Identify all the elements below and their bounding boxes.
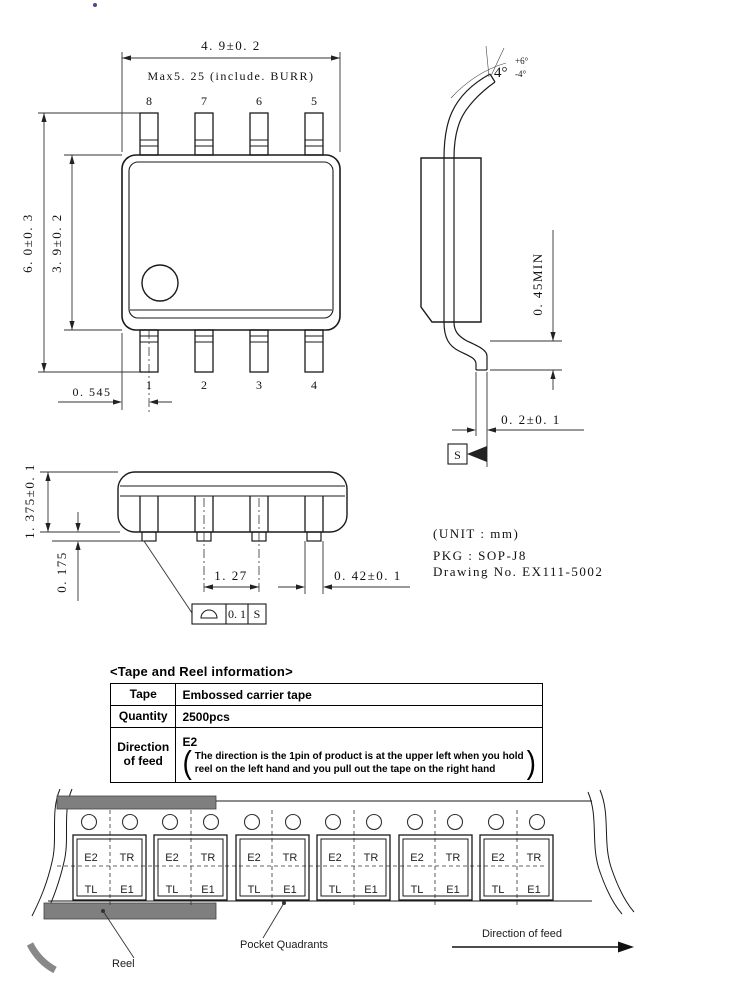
quadrant-tr: TR [527, 852, 542, 864]
quadrant-e1: E1 [527, 884, 540, 896]
top-pins [140, 113, 323, 155]
dim-lead-thickness: 0. 2±0. 1 [501, 412, 561, 427]
quadrant-tl: TL [329, 884, 342, 896]
pin-number-2: 2 [201, 378, 207, 392]
note-pkg: PKG : SOP-J8 [433, 548, 527, 563]
quantity-value: 2500pcs [176, 706, 543, 728]
quadrant-e1: E1 [120, 884, 133, 896]
tape-reel-title: <Tape and Reel information> [110, 664, 543, 679]
side-view-legs [140, 496, 323, 541]
pocket: E2 TR TL E1 [480, 835, 553, 900]
top-view: 8 7 6 5 1 2 3 4 [122, 94, 340, 414]
datum-s-label: S [454, 448, 461, 462]
package-drawing-page: 8 7 6 5 1 2 3 4 4. 9±0. 2 Max5. 25 (incl… [0, 0, 742, 988]
side-view: 1. 375±0. 1 0. 175 1. 27 0. 42±0. 1 0. 1 [22, 463, 410, 624]
quadrant-tr: TR [446, 852, 461, 864]
direction-note: ( The direction is the 1pin of product i… [182, 750, 536, 776]
drawing-notes: (UNIT : mm) PKG : SOP-J8 Drawing No. EX1… [433, 526, 603, 579]
pocket: E2 TR TL E1 [236, 835, 309, 900]
tape-label: Tape [111, 684, 176, 706]
quadrant-tr: TR [120, 852, 135, 864]
dim-lead-width: 0. 42±0. 1 [334, 568, 402, 583]
reel-bar-bottom [44, 903, 216, 919]
dim-body-height: 3. 9±0. 2 [49, 213, 64, 273]
pin-number-8: 8 [146, 94, 152, 108]
pocket: E2 TR TL E1 [73, 835, 146, 900]
pin-number-6: 6 [256, 94, 262, 108]
pocket: E2 TR TL E1 [154, 835, 227, 900]
fcf-datum: S [254, 607, 261, 621]
mechanical-drawing: 8 7 6 5 1 2 3 4 4. 9±0. 2 Max5. 25 (incl… [0, 0, 742, 655]
quadrant-tr: TR [364, 852, 379, 864]
pockets: E2 TR TL E1 E2 TR TL E1 E2 TR TL E1 [73, 835, 553, 900]
side-view-body [118, 472, 347, 532]
pin-number-3: 3 [256, 378, 262, 392]
direction-label: Direction of feed [111, 728, 176, 783]
dim-pin1-offset: 0. 545 [73, 385, 112, 399]
dim-lead-angle-minus: -4° [515, 69, 526, 79]
pin-number-5: 5 [311, 94, 317, 108]
note-unit: (UNIT : mm) [433, 526, 519, 541]
package-body-outline [122, 155, 340, 330]
tape-drawing: E2 TR TL E1 E2 TR TL E1 E2 TR TL E1 [0, 785, 742, 988]
direction-note-line2: reel on the left hand and you pull out t… [195, 763, 524, 776]
reel-bar-top [57, 796, 216, 809]
direction-note-line1: The direction is the 1pin of product is … [195, 750, 524, 763]
seating-plane-symbol-icon [201, 610, 217, 618]
end-view: 4° +6° -4° 0. 45MIN 0. 2±0. 1 S [421, 46, 584, 467]
dim-pkg-height: 1. 375±0. 1 [22, 463, 37, 539]
quadrant-e1: E1 [446, 884, 459, 896]
quadrant-tl: TL [85, 884, 98, 896]
quadrant-e1: E1 [364, 884, 377, 896]
quadrant-e1: E1 [283, 884, 296, 896]
pin1-marker-circle [142, 265, 178, 301]
datum-s-flag: S [448, 444, 487, 464]
sprocket-holes [82, 815, 545, 830]
quadrant-e2: E2 [328, 852, 341, 864]
dim-standoff: 0. 175 [54, 551, 69, 593]
pocket-quadrants-label: Pocket Quadrants [240, 939, 329, 951]
tape-end-curl [30, 944, 55, 970]
dim-body-width: 4. 9±0. 2 [201, 38, 261, 53]
dim-lead-angle: 4° [494, 65, 508, 81]
dim-foot-min: 0. 45MIN [530, 252, 545, 315]
direction-of-feed-label: Direction of feed [482, 928, 562, 940]
dim-lead-angle-plus: +6° [515, 56, 529, 66]
top-view-dimensions: 4. 9±0. 2 Max5. 25 (include. BURR) 6. 0±… [20, 38, 340, 410]
pocket: E2 TR TL E1 [317, 835, 390, 900]
pin-number-1: 1 [146, 378, 152, 392]
quadrant-tl: TL [166, 884, 179, 896]
reel-label: Reel [112, 958, 135, 970]
tape-reel-table: Tape Embossed carrier tape Quantity 2500… [110, 683, 543, 783]
dim-body-width-max: Max5. 25 (include. BURR) [148, 69, 315, 83]
quadrant-tl: TL [492, 884, 505, 896]
quadrant-e2: E2 [84, 852, 97, 864]
dim-pitch: 1. 27 [214, 568, 248, 583]
quantity-label: Quantity [111, 706, 176, 728]
quadrant-e2: E2 [410, 852, 423, 864]
end-view-body [421, 158, 481, 322]
paren-open: ( [182, 748, 191, 777]
pin-number-7: 7 [201, 94, 207, 108]
quadrant-tl: TL [248, 884, 261, 896]
quadrant-tr: TR [201, 852, 216, 864]
note-drawing-no: Drawing No. EX111-5002 [433, 564, 603, 579]
direction-value: E2 [182, 735, 536, 749]
pin-number-4: 4 [311, 378, 317, 392]
quadrant-e2: E2 [491, 852, 504, 864]
quadrant-e1: E1 [201, 884, 214, 896]
tape-value: Embossed carrier tape [176, 684, 543, 706]
bottom-pins [140, 330, 323, 372]
dim-total-height: 6. 0±0. 3 [20, 213, 35, 273]
paren-close: ) [527, 748, 536, 777]
fcf-tolerance: 0. 1 [228, 607, 246, 621]
datum-triangle-icon [467, 446, 487, 462]
quadrant-e2: E2 [247, 852, 260, 864]
direction-value-cell: E2 ( The direction is the 1pin of produc… [176, 728, 543, 783]
pocket: E2 TR TL E1 [399, 835, 472, 900]
feed-arrow-icon [618, 942, 634, 953]
package-body-inner-line [129, 162, 333, 318]
quadrant-e2: E2 [165, 852, 178, 864]
quadrant-tr: TR [283, 852, 298, 864]
tape-reel-info: <Tape and Reel information> Tape Embosse… [110, 664, 543, 783]
quadrant-tl: TL [411, 884, 424, 896]
